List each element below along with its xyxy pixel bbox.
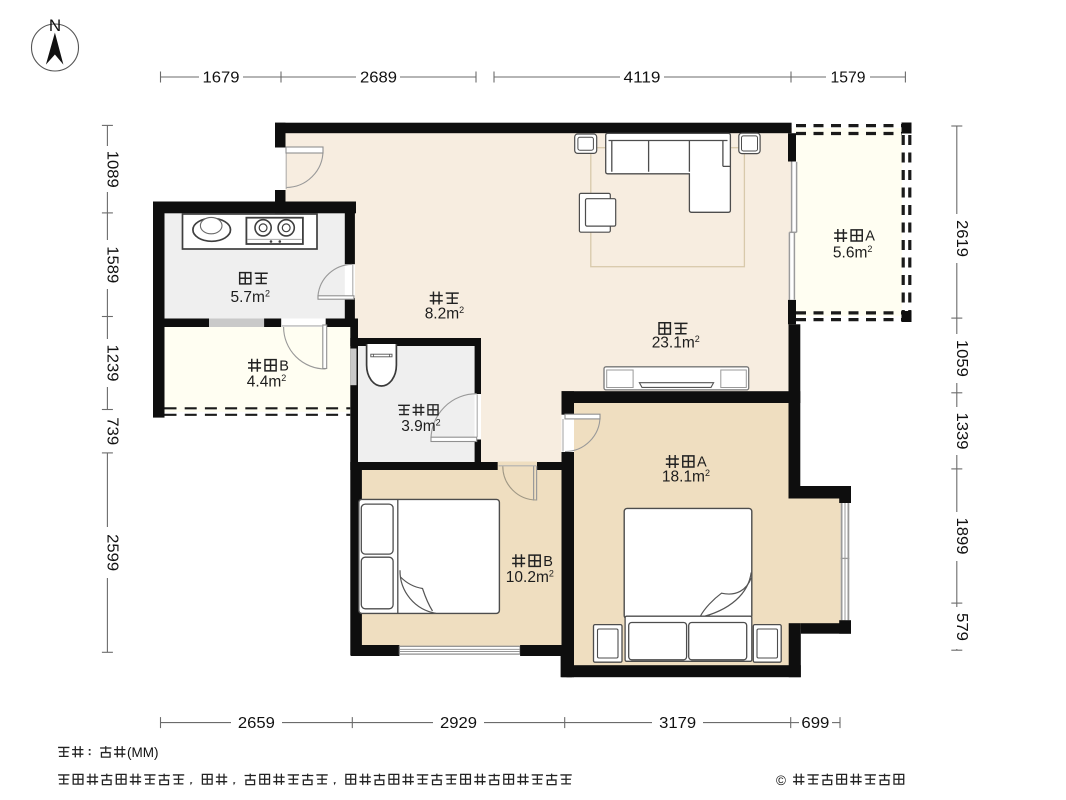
svg-text:2929: 2929: [440, 715, 477, 732]
svg-text:5.7m2: 5.7m2: [231, 289, 270, 307]
svg-text:1239: 1239: [103, 345, 120, 382]
svg-text:A: A: [865, 229, 875, 245]
svg-text:N: N: [49, 16, 61, 35]
svg-text:1589: 1589: [103, 246, 120, 283]
svg-text:739: 739: [103, 417, 120, 445]
svg-text:2619: 2619: [953, 220, 970, 257]
svg-text:1089: 1089: [103, 151, 120, 188]
svg-text:B: B: [543, 554, 553, 570]
svg-text:1899: 1899: [953, 518, 970, 555]
svg-text:699: 699: [801, 715, 829, 732]
svg-text:10.2m2: 10.2m2: [506, 569, 554, 587]
svg-text:1579: 1579: [831, 70, 866, 87]
svg-text:23.1m2: 23.1m2: [652, 334, 700, 352]
svg-text:1339: 1339: [953, 413, 970, 450]
svg-text:4119: 4119: [624, 70, 661, 87]
svg-text:©: ©: [776, 773, 786, 788]
svg-text:3.9m2: 3.9m2: [401, 418, 440, 436]
svg-text:579: 579: [953, 613, 970, 641]
svg-text:2599: 2599: [103, 534, 120, 571]
svg-text:5.6m2: 5.6m2: [833, 244, 872, 262]
svg-text:1059: 1059: [953, 340, 970, 377]
svg-text:2659: 2659: [238, 715, 275, 732]
svg-text:18.1m2: 18.1m2: [662, 468, 710, 486]
svg-text:3179: 3179: [659, 715, 696, 732]
svg-text:2689: 2689: [360, 70, 397, 87]
svg-text:B: B: [279, 358, 289, 374]
svg-text:1679: 1679: [203, 70, 240, 87]
svg-text:(MM): (MM): [127, 745, 158, 760]
svg-text:4.4m2: 4.4m2: [247, 373, 286, 391]
svg-text:8.2m2: 8.2m2: [425, 305, 464, 323]
